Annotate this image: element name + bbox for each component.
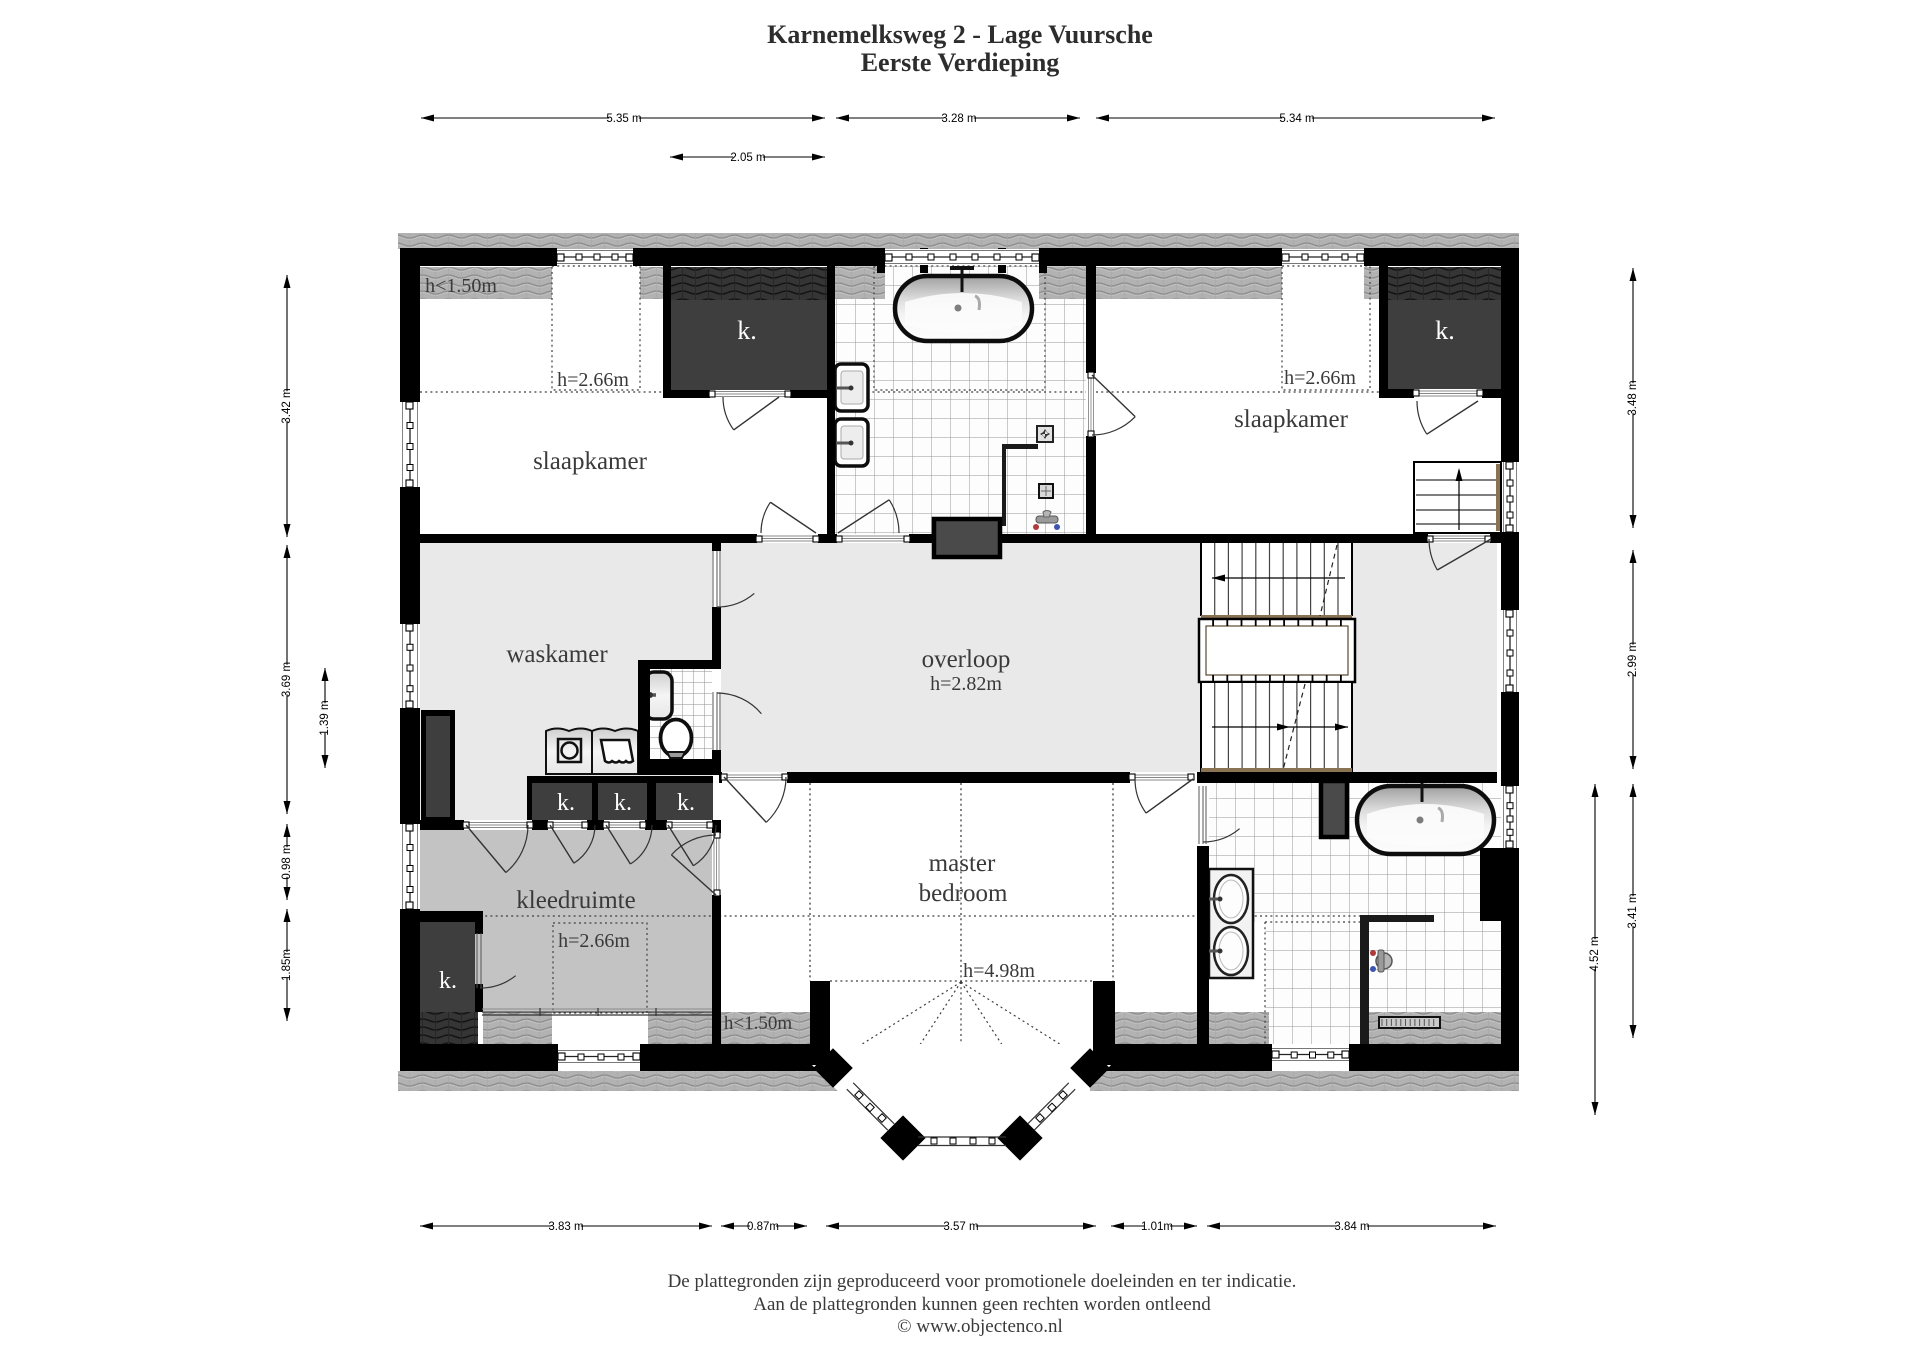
svg-text:3.83 m: 3.83 m <box>548 1221 583 1233</box>
svg-text:3.41 m: 3.41 m <box>1627 893 1639 928</box>
svg-text:2.05 m: 2.05 m <box>730 152 765 164</box>
svg-text:Aan de plattegronden kunnen ge: Aan de plattegronden kunnen geen rechten… <box>753 1294 1211 1315</box>
svg-text:h=2.66m: h=2.66m <box>558 930 630 952</box>
svg-text:h<1.50m: h<1.50m <box>425 275 497 297</box>
svg-text:3.69 m: 3.69 m <box>281 662 293 697</box>
svg-text:3.84 m: 3.84 m <box>1334 1221 1369 1233</box>
svg-text:1.39 m: 1.39 m <box>319 700 331 735</box>
svg-text:1.01m: 1.01m <box>1141 1221 1173 1233</box>
svg-text:Karnemelksweg 2 - Lage Vuursch: Karnemelksweg 2 - Lage Vuursche <box>767 20 1153 49</box>
svg-text:© www.objectenco.nl: © www.objectenco.nl <box>897 1316 1063 1337</box>
svg-text:k.: k. <box>677 790 695 816</box>
svg-text:slaapkamer: slaapkamer <box>1234 406 1349 433</box>
svg-text:h=2.66m: h=2.66m <box>1284 367 1356 389</box>
svg-text:slaapkamer: slaapkamer <box>533 448 648 475</box>
svg-text:k.: k. <box>1435 316 1455 345</box>
svg-text:3.42 m: 3.42 m <box>281 388 293 423</box>
svg-text:3.48 m: 3.48 m <box>1627 380 1639 415</box>
svg-text:k.: k. <box>439 968 457 994</box>
svg-text:1.85m: 1.85m <box>281 949 293 981</box>
svg-text:h=2.82m: h=2.82m <box>930 673 1002 695</box>
svg-text:3.28 m: 3.28 m <box>941 113 976 125</box>
svg-text:overloop: overloop <box>922 646 1011 673</box>
svg-text:k.: k. <box>614 790 632 816</box>
svg-text:Eerste Verdieping: Eerste Verdieping <box>861 48 1060 77</box>
svg-text:h=4.98m: h=4.98m <box>963 960 1035 982</box>
svg-text:3.57 m: 3.57 m <box>943 1221 978 1233</box>
svg-text:De plattegronden zijn geproduc: De plattegronden zijn geproduceerd voor … <box>668 1271 1297 1292</box>
svg-text:master: master <box>929 850 996 877</box>
svg-text:2.99 m: 2.99 m <box>1627 642 1639 677</box>
svg-text:4.52 m: 4.52 m <box>1589 936 1601 971</box>
svg-text:5.34 m: 5.34 m <box>1279 113 1314 125</box>
svg-text:h=2.66m: h=2.66m <box>557 369 629 391</box>
svg-text:5.35 m: 5.35 m <box>606 113 641 125</box>
svg-text:0.98 m: 0.98 m <box>281 844 293 879</box>
svg-text:bedroom: bedroom <box>919 880 1008 907</box>
svg-text:h<1.50m: h<1.50m <box>724 1013 792 1034</box>
svg-text:0.87m: 0.87m <box>747 1221 779 1233</box>
svg-text:k.: k. <box>737 316 757 345</box>
svg-text:k.: k. <box>557 790 575 816</box>
svg-text:kleedruimte: kleedruimte <box>516 887 635 914</box>
svg-text:waskamer: waskamer <box>506 641 608 668</box>
